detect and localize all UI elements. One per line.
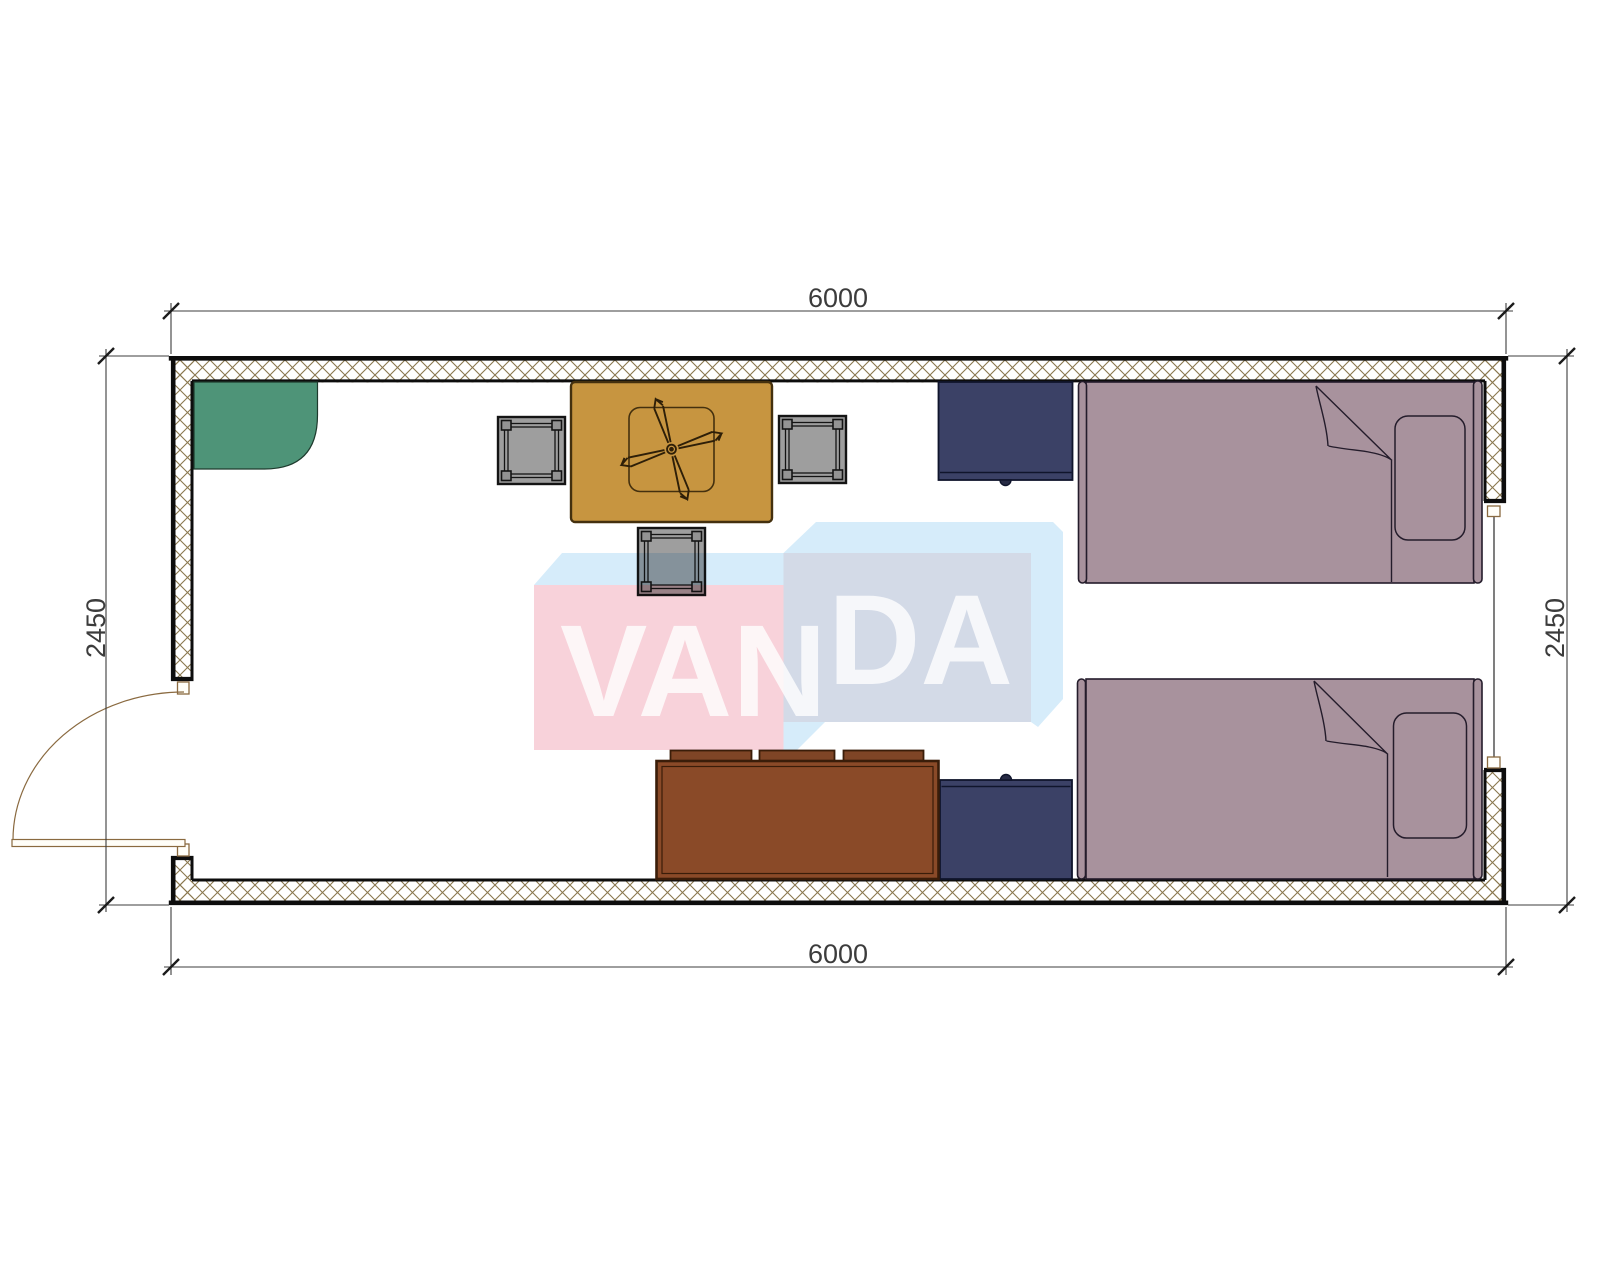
svg-text:6000: 6000	[808, 283, 868, 313]
svg-text:DA: DA	[828, 569, 1013, 712]
svg-text:2450: 2450	[81, 598, 111, 658]
svg-text:6000: 6000	[808, 939, 868, 969]
svg-text:2450: 2450	[1540, 598, 1570, 658]
svg-text:VAN: VAN	[560, 597, 827, 744]
